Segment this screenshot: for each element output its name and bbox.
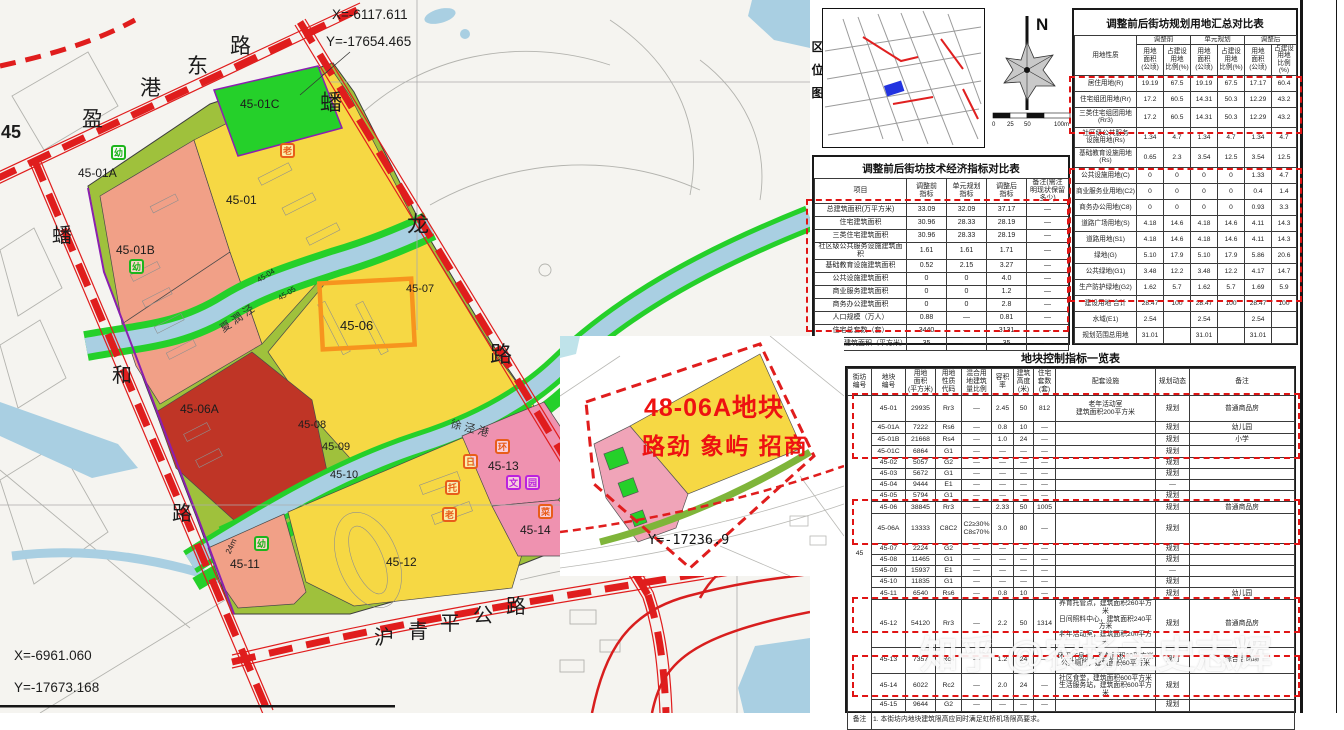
cell: — (962, 458, 992, 469)
parcel-label: 45-06A (180, 402, 219, 416)
table-landuse-summary: 调整前后街坊规划用地汇总对比表 用地性质调整前单元规划调整后用地 面积 (公顷)… (1072, 8, 1298, 345)
cell: — (1027, 217, 1069, 230)
block-edge-label: 45 (1, 122, 21, 142)
svg-text:日: 日 (466, 457, 475, 467)
cell: G1 (936, 491, 962, 502)
cell: — (962, 422, 992, 434)
cell: 15937 (906, 566, 936, 577)
cell: 19.19 (1191, 75, 1218, 91)
table-row: 住宅总套数（套）3440—3131— (815, 325, 1069, 338)
cell: — (1014, 480, 1034, 491)
cell: — (1014, 491, 1034, 502)
cell: 9444 (906, 480, 936, 491)
cell: 1. 本街坊内地块建筑限高应同时满足虹桥机场限高要求。 (872, 711, 1295, 729)
culture-icon: 文 (507, 476, 520, 489)
cell: 0 (1218, 167, 1245, 183)
svg-text:托: 托 (448, 482, 457, 493)
cell: 19.19 (1137, 75, 1164, 91)
header-cell: 调整后 (1245, 36, 1297, 45)
cell: — (962, 502, 992, 514)
cell: 幼儿园 (1190, 588, 1295, 600)
cell: 2.3 (1164, 147, 1191, 167)
cell: 规划 (1156, 434, 1190, 446)
cell: 1.2 (987, 286, 1027, 299)
table-row: 规划范围总用地31.0131.0131.01 (1075, 327, 1297, 343)
cell: 1.62 (1191, 279, 1218, 295)
cell: G1 (936, 555, 962, 566)
cell: 规划 (1156, 699, 1190, 711)
cell (1190, 699, 1295, 711)
cell: 4.11 (1245, 215, 1272, 231)
table-row: 基础教育设施用地 (Rs)0.652.33.5412.53.5412.5 (1075, 147, 1297, 167)
cell: E1 (936, 480, 962, 491)
cell: G2 (936, 458, 962, 469)
cell: 5.10 (1191, 247, 1218, 263)
table-header-row: 项目调整前 指标单元规划 指标调整后 指标备注(需注 明现状保留 多少) (815, 179, 1069, 204)
table-row: 45-035672G1————规划 (848, 469, 1295, 480)
cell (1056, 458, 1156, 469)
cell: 100 (1218, 295, 1245, 311)
cell: 28.47 (1137, 295, 1164, 311)
cell: 5672 (906, 469, 936, 480)
table-row: 三类住宅建筑面积30.9628.3328.19— (815, 230, 1069, 243)
cell: 规划 (1156, 514, 1190, 544)
cell: 60.5 (1164, 107, 1191, 127)
table-row: 建设用地 合计28.4710028.4710028.47100 (1075, 295, 1297, 311)
cell: 7222 (906, 422, 936, 434)
table-title: 地块控制指标一览表 (845, 350, 1296, 366)
cell: 14.7 (1272, 263, 1297, 279)
table-row: 45-1011835G1————规划 (848, 577, 1295, 588)
cell: 道路广场用地(S) (1075, 215, 1137, 231)
cell: C8C2 (936, 514, 962, 544)
cell: 45-03 (872, 469, 906, 480)
cell: 规划 (1156, 396, 1190, 422)
cell: — (992, 544, 1014, 555)
cell: 67.5 (1218, 75, 1245, 91)
table-row: 45-01A7222Rs6—0.810—规划幼儿园 (848, 422, 1295, 434)
cell: 45-10 (872, 577, 906, 588)
kindergarten-icon: 幼 (112, 146, 125, 159)
cell: 绿地(G) (1075, 247, 1137, 263)
cell: 50 (1014, 396, 1034, 422)
cell: 28.33 (947, 230, 987, 243)
cell: 10 (1014, 588, 1034, 600)
cell: 0 (1191, 199, 1218, 215)
garden-icon: 园 (526, 476, 539, 489)
cell: 规划 (1156, 588, 1190, 600)
table-row: 道路用地(S1)4.1814.64.1814.64.1114.3 (1075, 231, 1297, 247)
cell: Rs6 (936, 588, 962, 600)
cell: 1.62 (1137, 279, 1164, 295)
cell: 1.4 (1272, 183, 1297, 199)
header-cell: 住宅 套数 (套) (1034, 369, 1056, 396)
svg-text:幼: 幼 (114, 147, 123, 158)
cell: 0 (1164, 167, 1191, 183)
cell: 100 (1164, 295, 1191, 311)
table-row: 总建筑面积(万平方米)33.0932.0937.17— (815, 204, 1069, 217)
svg-text:100m: 100m (1054, 122, 1069, 128)
svg-text:盈: 盈 (82, 108, 103, 131)
cell: — (992, 458, 1014, 469)
cell: 2.54 (1137, 311, 1164, 327)
cell: 三类住宅组团用地 (Rr3) (1075, 107, 1137, 127)
cell: 14.6 (1218, 215, 1245, 231)
cell: 商业服务业用地(C2) (1075, 183, 1137, 199)
cell: 28.19 (987, 230, 1027, 243)
cell: 2.45 (992, 396, 1014, 422)
cell: — (992, 469, 1014, 480)
cell: — (962, 396, 992, 422)
cell: 60.5 (1164, 91, 1191, 107)
cell: 4.7 (1164, 127, 1191, 147)
cell: 35 (907, 338, 947, 351)
cell: 5.7 (1218, 279, 1245, 295)
table-title: 调整前后街坊规划用地汇总对比表 (1074, 10, 1296, 35)
cell: 31.01 (1137, 327, 1164, 343)
cell: 28.19 (987, 217, 1027, 230)
svg-text:老: 老 (444, 509, 454, 520)
cell: 总建筑面积(万平方米) (815, 204, 907, 217)
frame-line (1300, 0, 1303, 713)
cell: 3.54 (1191, 147, 1218, 167)
cell: 12.5 (1218, 147, 1245, 167)
cell: — (947, 338, 987, 351)
table-row: 公共绿地(G1)3.4812.23.4812.24.1714.7 (1075, 263, 1297, 279)
parcel-label: 45-01A (78, 166, 117, 180)
header-cell: 地块 编号 (872, 369, 906, 396)
kindergarten-icon: 幼 (130, 260, 143, 273)
table-row: 45-072224G2————规划 (848, 544, 1295, 555)
cell: 3.48 (1191, 263, 1218, 279)
cell: 3.54 (1245, 147, 1272, 167)
svg-text:X=-6117.611: X=-6117.611 (332, 7, 408, 22)
cell (1190, 544, 1295, 555)
parcel-label: 45-14 (520, 523, 551, 537)
cell: 30.96 (907, 217, 947, 230)
cell: C2≥30% C8≤70% (962, 514, 992, 544)
table-row: 45-049444E1————— (848, 480, 1295, 491)
cell: 67.5 (1164, 75, 1191, 91)
svg-text:25: 25 (1007, 122, 1014, 128)
table-row: 社区级公共服务设施建筑面积1.611.611.71— (815, 243, 1069, 260)
planning-document: 幼 幼 老 幼 托 日 老 环 文 园 菜 45 45-01A 45-01B 4… (0, 0, 1344, 713)
cell: 0 (1164, 199, 1191, 215)
inset-headline: 48-06A地块 (644, 394, 784, 422)
cell: 4.7 (1218, 127, 1245, 147)
cell: — (1027, 230, 1069, 243)
cell: 14.6 (1164, 215, 1191, 231)
cell: 0 (907, 286, 947, 299)
cell: 28.47 (1191, 295, 1218, 311)
table-row: 公共设施用地(C)00001.334.7 (1075, 167, 1297, 183)
cell: 人口规模（万人） (815, 312, 907, 325)
table-row: 45-01C6864G1————规划 (848, 446, 1295, 458)
cell: 规划 (1156, 491, 1190, 502)
cell: 0 (1137, 167, 1164, 183)
cell: 38845 (906, 502, 936, 514)
cell: 17.17 (1245, 75, 1272, 91)
daycare-icon: 日 (464, 455, 477, 468)
cell (1218, 327, 1245, 343)
cell: G2 (936, 699, 962, 711)
cell: — (992, 699, 1014, 711)
cell (1056, 434, 1156, 446)
cell: 11465 (906, 555, 936, 566)
header-cell: 单元规划 (1191, 36, 1245, 45)
svg-text:路: 路 (490, 342, 512, 367)
cell (1056, 544, 1156, 555)
location-map-streets (825, 11, 981, 145)
kindergarten-icon: 幼 (255, 537, 268, 550)
parcel-label: 45-09 (322, 441, 350, 453)
table-header-row: 用地性质调整前单元规划调整后 (1075, 36, 1297, 45)
cell: 3.48 (1137, 263, 1164, 279)
cell: — (992, 577, 1014, 588)
svg-text:公: 公 (473, 605, 493, 627)
cell (1190, 555, 1295, 566)
cell: — (1014, 699, 1034, 711)
cell: 12.5 (1272, 147, 1297, 167)
parcel-label: 45-01C (240, 97, 280, 111)
elder-activity-icon: 老 (281, 144, 294, 157)
cell: 规划 (1156, 469, 1190, 480)
svg-text:蟠: 蟠 (320, 90, 342, 115)
cell: 三类住宅建筑面积 (815, 230, 907, 243)
cell: — (1027, 204, 1069, 217)
cell: 0.4 (1245, 183, 1272, 199)
cell: 80 (1014, 514, 1034, 544)
cell: 3131 (987, 325, 1027, 338)
cell: 6540 (906, 588, 936, 600)
cell: 1.0 (992, 434, 1014, 446)
cell: 50.3 (1218, 107, 1245, 127)
cell: 32.09 (947, 204, 987, 217)
cell: — (1027, 286, 1069, 299)
cell: 社区级公共服务 设施用地(Rs) (1075, 127, 1137, 147)
cell: — (1014, 566, 1034, 577)
header-cell: 用地 面积 (公顷) (1191, 44, 1218, 75)
cell: 0.93 (1245, 199, 1272, 215)
cell: 基础教育设施用地 (Rs) (1075, 147, 1137, 167)
cell: — (947, 312, 987, 325)
svg-text:平: 平 (440, 613, 460, 635)
cell: — (992, 446, 1014, 458)
cell: 45-11 (872, 588, 906, 600)
cell: — (1034, 422, 1056, 434)
svg-text:X=-6961.060: X=-6961.060 (14, 648, 92, 663)
cell: 规划范围总用地 (1075, 327, 1137, 343)
cell (1190, 469, 1295, 480)
cell: — (1014, 555, 1034, 566)
cell: — (1034, 458, 1056, 469)
svg-text:菜: 菜 (540, 506, 551, 517)
cell: 9644 (906, 699, 936, 711)
cell: — (1034, 544, 1056, 555)
cell: — (1014, 544, 1034, 555)
inset-subline: 路劲 象屿 招商 (642, 433, 809, 459)
cell (1190, 480, 1295, 491)
cell: 规划 (1156, 458, 1190, 469)
cell (1164, 311, 1191, 327)
cell: 1.69 (1245, 279, 1272, 295)
cell: — (1027, 312, 1069, 325)
cell: 6864 (906, 446, 936, 458)
table-row: 住宅建筑面积30.9628.3328.19— (815, 217, 1069, 230)
cell: 建设用地 合计 (1075, 295, 1137, 311)
cell: — (1027, 243, 1069, 260)
svg-text:龙: 龙 (407, 212, 429, 237)
header-cell: 用地性质 (1075, 36, 1137, 76)
cell: 12.29 (1245, 107, 1272, 127)
cell: 0.88 (907, 312, 947, 325)
compass-rose: N (992, 12, 1072, 112)
cell: Rs6 (936, 422, 962, 434)
cell (1056, 566, 1156, 577)
svg-text:东: 东 (187, 55, 208, 78)
header-cell: 用地 性质 代码 (936, 369, 962, 396)
elder-activity-icon: 老 (443, 508, 456, 521)
cell: 45-01C (872, 446, 906, 458)
cell: 0.81 (987, 312, 1027, 325)
table-row: 备注1. 本街坊内地块建筑限高应同时满足虹桥机场限高要求。 (848, 711, 1295, 729)
cell: — (1034, 699, 1056, 711)
cell: — (1034, 446, 1056, 458)
table-row: 45-0915937E1————— (848, 566, 1295, 577)
cell: — (1034, 588, 1056, 600)
cell: 45-01B (872, 434, 906, 446)
svg-text:青: 青 (408, 620, 428, 643)
parcel-label: 45-01 (226, 193, 257, 207)
cell: — (1014, 469, 1034, 480)
table-row: 商务办公用地(C8)00000.933.3 (1075, 199, 1297, 215)
header-cell: 调整后 指标 (987, 179, 1027, 204)
cell: 4.7 (1272, 167, 1297, 183)
cell: 14.3 (1272, 215, 1297, 231)
cell (1190, 491, 1295, 502)
cell: 规划 (1156, 577, 1190, 588)
cell: 2.8 (987, 299, 1027, 312)
cell (1218, 311, 1245, 327)
cell: 37.17 (987, 204, 1027, 217)
cell (1056, 588, 1156, 600)
table-row: 45-025057G2————规划 (848, 458, 1295, 469)
header-cell: 街坊 编号 (848, 369, 872, 396)
table-row: 商业服务建筑面积001.2— (815, 286, 1069, 299)
cell: 45-01 (872, 396, 906, 422)
header-cell: 用地 面积 (公顷) (1245, 44, 1272, 75)
header-cell: 项目 (815, 179, 907, 204)
cell: 812 (1034, 396, 1056, 422)
parcel-label: 45-08 (298, 419, 326, 431)
cell: — (1014, 458, 1034, 469)
cell: 45-09 (872, 566, 906, 577)
cell (1190, 446, 1295, 458)
cell: 45-06 (872, 502, 906, 514)
cell: Rs4 (936, 434, 962, 446)
cell: 13333 (906, 514, 936, 544)
cell: 0 (947, 286, 987, 299)
cell: 备注 (848, 711, 872, 729)
cell: — (947, 325, 987, 338)
cell: Rr3 (936, 396, 962, 422)
cell (1056, 502, 1156, 514)
cell: 4.11 (1245, 231, 1272, 247)
cell: 14.6 (1164, 231, 1191, 247)
cell: — (1034, 491, 1056, 502)
parcel-label: 45-01B (116, 243, 155, 257)
cell (1190, 566, 1295, 577)
cell: G1 (936, 446, 962, 458)
cell: 普通商品房 (1190, 396, 1295, 422)
cell: — (1014, 577, 1034, 588)
cell: 规划 (1156, 502, 1190, 514)
cell: 5.7 (1164, 279, 1191, 295)
svg-text:路: 路 (172, 502, 192, 525)
cell: — (1034, 469, 1056, 480)
cell: — (1034, 577, 1056, 588)
cell: — (962, 577, 992, 588)
cell: 45-04 (872, 480, 906, 491)
cell: 43.2 (1272, 91, 1297, 107)
cell: 0 (1164, 183, 1191, 199)
data-table: 用地性质调整前单元规划调整后用地 面积 (公顷)占建设 用地 比例(%)用地 面… (1074, 35, 1297, 344)
cell: 1.61 (907, 243, 947, 260)
cell: 5.10 (1137, 247, 1164, 263)
parcel-label: 45-10 (330, 469, 358, 481)
cell (1056, 514, 1156, 544)
svg-text:文: 文 (508, 477, 519, 488)
cell: 1.71 (987, 243, 1027, 260)
cell: 21668 (906, 434, 936, 446)
cell: E1 (936, 566, 962, 577)
svg-text:园: 园 (528, 478, 537, 488)
header-cell: 备注(需注 明现状保留 多少) (1027, 179, 1069, 204)
cell: 0 (1191, 167, 1218, 183)
cell: 4.18 (1137, 231, 1164, 247)
table-row: 绿地(G)5.1017.95.1017.95.8620.6 (1075, 247, 1297, 263)
svg-text:港: 港 (140, 77, 161, 100)
table-row: 社区级公共服务 设施用地(Rs)1.344.71.344.71.344.7 (1075, 127, 1297, 147)
cell: 24 (1014, 434, 1034, 446)
cell: 12.2 (1164, 263, 1191, 279)
cell: 4.18 (1191, 231, 1218, 247)
table-row: 人口规模（万人）0.88—0.81— (815, 312, 1069, 325)
cell: — (1027, 338, 1069, 351)
cell: 老年活动室 建筑面积200平方米 (1056, 396, 1156, 422)
cell: 29935 (906, 396, 936, 422)
cell (1190, 514, 1295, 544)
cell: 10 (1014, 422, 1034, 434)
table-row: 45-06A13333C8C2C2≥30% C8≤70%3.080—规划 (848, 514, 1295, 544)
parcel-label: 45-13 (488, 459, 519, 473)
header-cell: 调整前 指标 (907, 179, 947, 204)
table-row: 水域(E1)2.542.542.54 (1075, 311, 1297, 327)
cell: 3.27 (987, 260, 1027, 273)
cell: 5.86 (1245, 247, 1272, 263)
cell: 0.8 (992, 422, 1014, 434)
cell: 2.15 (947, 260, 987, 273)
cell: — (1034, 566, 1056, 577)
table-row: 4545-0129935Rr3—2.4550812老年活动室 建筑面积200平方… (848, 396, 1295, 422)
cell: 12.2 (1218, 263, 1245, 279)
cell: 规划 (1156, 544, 1190, 555)
cell: 道路用地(S1) (1075, 231, 1137, 247)
parcel-label: 45-07 (406, 283, 434, 295)
cell: 公共绿地(G1) (1075, 263, 1137, 279)
cell: 0 (947, 273, 987, 286)
parcel-label: 45-06 (340, 318, 373, 333)
